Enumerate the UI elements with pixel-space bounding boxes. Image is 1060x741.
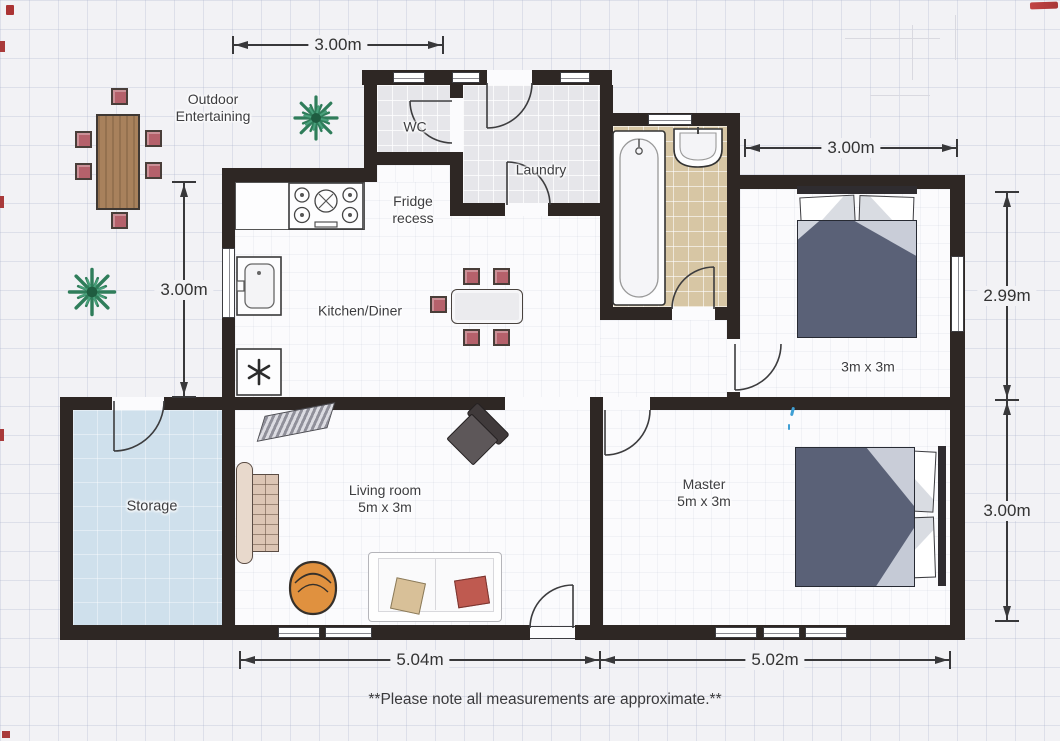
master-window-1 — [715, 627, 757, 638]
bed-duvet — [797, 220, 917, 338]
laundry-window-1 — [452, 72, 480, 83]
master-window-3 — [805, 627, 847, 638]
wc-window — [393, 72, 425, 83]
scan-artifact-red — [0, 41, 5, 52]
kitchen-label: Kitchen/Diner — [318, 303, 402, 320]
scan-artifact-red — [2, 731, 10, 738]
living-room-name: Living room — [349, 482, 421, 499]
scan-artifact-red — [1030, 2, 1058, 10]
bedroom2-size-label: 3m x 3m — [841, 359, 895, 376]
bathroom-bottom-wall-b — [715, 307, 740, 320]
outdoor-label-line2: Entertaining — [176, 108, 251, 125]
outdoor-chair — [111, 212, 128, 229]
master-size: 5m x 3m — [677, 493, 731, 510]
plant-icon — [62, 262, 122, 322]
dim-top-width-value: 3.00m — [308, 35, 367, 55]
outdoor-chair — [111, 88, 128, 105]
laundry-window-2 — [560, 72, 590, 83]
bed-headboard — [797, 186, 917, 194]
pen-mark-blue — [788, 424, 790, 430]
basin-icon — [672, 127, 724, 169]
scan-artifact-red — [6, 5, 14, 15]
fireplace-hearth — [252, 474, 279, 552]
outdoor-table — [96, 114, 140, 210]
kitchen-window — [222, 248, 235, 318]
pencil-line — [845, 38, 940, 39]
storage-door-gap — [112, 397, 164, 410]
fridge-recess-line1: Fridge — [392, 193, 433, 210]
living-master-divider — [590, 397, 603, 640]
dim-bedroom2-height-value: 2.99m — [977, 286, 1036, 306]
fridge-recess-line2: recess — [392, 210, 433, 227]
dim-master-height-value: 3.00m — [977, 501, 1036, 521]
dim-left-height-value: 3.00m — [154, 280, 213, 300]
outdoor-chair — [145, 130, 162, 147]
master-name: Master — [677, 476, 731, 493]
bedroom2-window — [951, 256, 964, 332]
living-patio-door-threshold — [530, 626, 575, 639]
laundry-label: Laundry — [516, 162, 567, 179]
wc-door-gap — [450, 98, 463, 152]
bathroom-window — [648, 114, 692, 125]
outdoor-label: Outdoor Entertaining — [176, 91, 251, 125]
dining-chair — [493, 268, 510, 285]
bathroom-bottom-wall-a — [600, 307, 672, 320]
laundry-entry-door-gap — [487, 70, 532, 85]
scan-artifact-red — [0, 196, 4, 208]
fridge-recess-label: Fridge recess — [392, 193, 433, 227]
wc-laundry-divider — [450, 85, 463, 98]
outdoor-chair — [145, 162, 162, 179]
hallway-floor — [600, 320, 727, 397]
dining-chair — [463, 268, 480, 285]
storage-top-wall-b — [164, 397, 222, 410]
dishwasher-icon — [236, 348, 282, 396]
floor-plan-page: Outdoor Entertaining WC Laundry Fridge r… — [0, 0, 1060, 741]
bathtub-icon — [612, 130, 666, 306]
outdoor-chair — [75, 163, 92, 180]
pencil-line — [912, 25, 913, 80]
fridge-recess-floor — [377, 165, 450, 182]
storage-left-wall — [60, 397, 73, 640]
master-window-2 — [763, 627, 800, 638]
sofa-cushion-red — [454, 576, 490, 609]
living-room-size: 5m x 3m — [349, 499, 421, 516]
wc-label: WC — [403, 119, 426, 136]
stove-icon — [288, 182, 364, 230]
living-window-1 — [278, 627, 320, 638]
master-top-wall — [650, 397, 965, 410]
bed-headboard — [938, 446, 946, 586]
outdoor-label-line1: Outdoor — [176, 91, 251, 108]
living-window-2 — [325, 627, 372, 638]
egg-chair-icon — [284, 555, 342, 617]
dining-table — [451, 289, 523, 324]
bed-duvet — [795, 447, 915, 587]
dim-bedroom2-width-value: 3.00m — [821, 138, 880, 158]
fireplace-icon — [236, 462, 253, 564]
laundry-bottom-wall-a — [450, 203, 505, 216]
laundry-hall-door-gap — [505, 203, 548, 216]
living-room-label: Living room 5m x 3m — [349, 482, 421, 516]
bathroom-door-gap — [672, 307, 715, 320]
kitchen-top-wall — [222, 168, 377, 182]
dim-master-width-value: 5.02m — [745, 650, 804, 670]
wc-bottom-wall — [377, 152, 463, 165]
pencil-line — [870, 95, 930, 96]
measurements-note: **Please note all measurements are appro… — [368, 691, 721, 709]
dining-chair — [430, 296, 447, 313]
dining-chair — [493, 329, 510, 346]
outdoor-chair — [75, 131, 92, 148]
storage-label: Storage — [127, 499, 178, 516]
dining-chair — [463, 329, 480, 346]
master-door-gap — [603, 397, 650, 410]
kitchen-living-opening — [505, 397, 590, 410]
pencil-line — [955, 15, 956, 60]
plant-icon — [288, 90, 344, 146]
master-label: Master 5m x 3m — [677, 476, 731, 510]
laundry-floor — [463, 85, 600, 203]
wc-left-wall — [364, 70, 377, 182]
kitchen-sink-icon — [236, 256, 282, 316]
storage-floor — [73, 410, 222, 625]
bedroom2-door-gap — [727, 339, 740, 392]
scan-artifact-red — [0, 429, 4, 441]
dim-living-width-value: 5.04m — [390, 650, 449, 670]
